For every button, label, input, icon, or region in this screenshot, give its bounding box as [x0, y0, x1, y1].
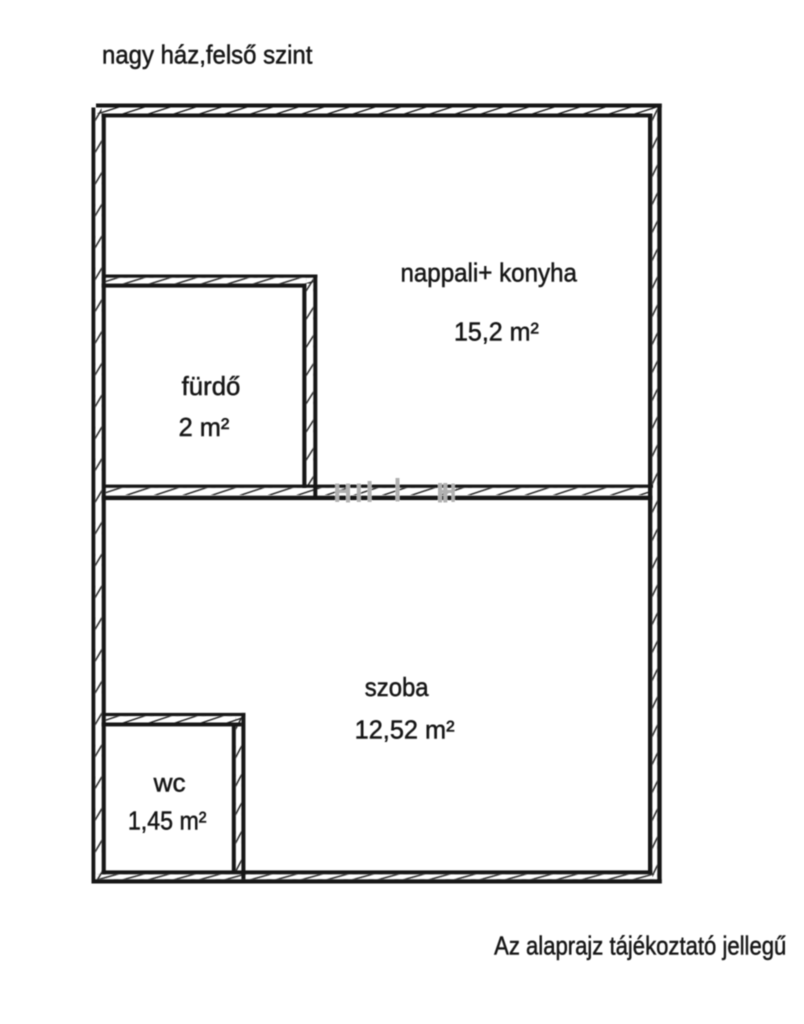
svg-text:fürdő: fürdő	[182, 371, 241, 401]
svg-text:Az alaprajz tájékoztató jelleg: Az alaprajz tájékoztató jellegű	[494, 930, 786, 960]
svg-text:szoba: szoba	[365, 672, 429, 702]
svg-text:wc: wc	[153, 768, 186, 798]
svg-text:2 m²: 2 m²	[179, 412, 230, 442]
svg-text:nagy ház,felső szint: nagy ház,felső szint	[102, 40, 313, 70]
svg-text:nappali+ konyha: nappali+ konyha	[400, 258, 577, 288]
svg-text:15,2 m²: 15,2 m²	[454, 316, 539, 346]
svg-text:1,45 m²: 1,45 m²	[128, 805, 207, 835]
svg-text:12,52 m²: 12,52 m²	[355, 715, 455, 745]
